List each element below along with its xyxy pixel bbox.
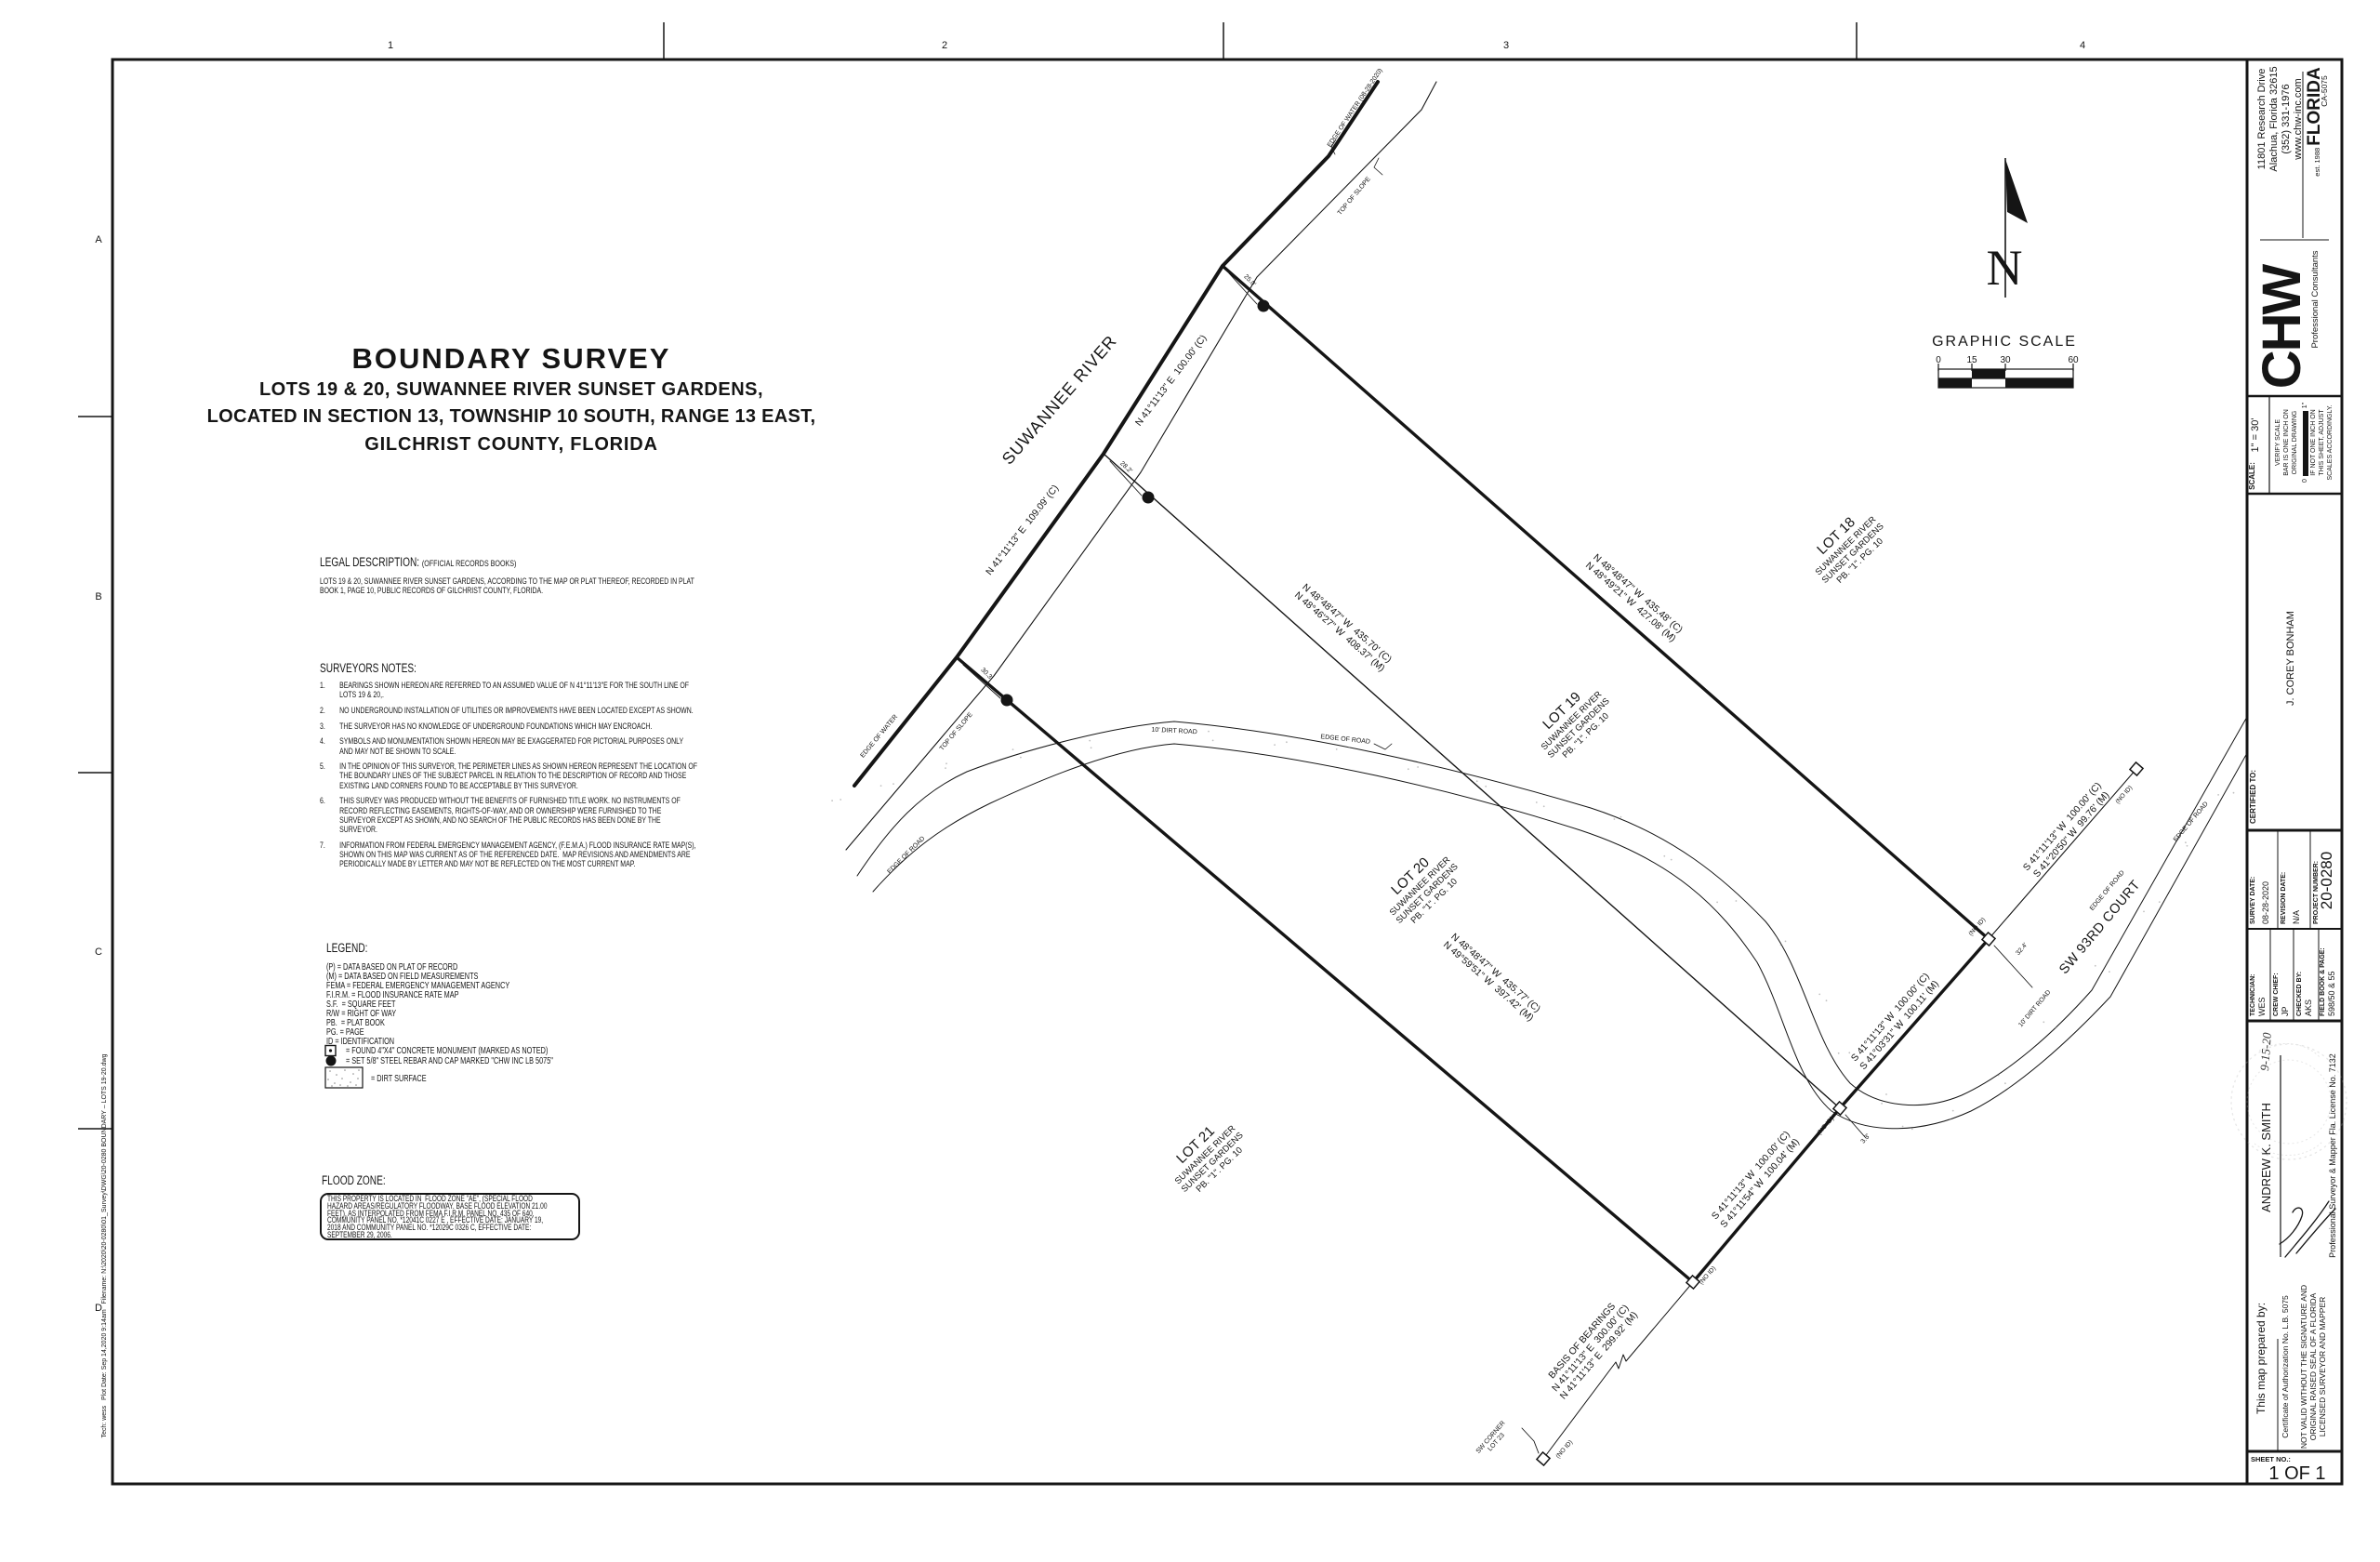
svg-text:CA-5075: CA-5075 <box>2320 75 2329 107</box>
svg-text:CHECKED BY:: CHECKED BY: <box>2296 972 2303 1016</box>
svg-text:THIS SHEET, ADJUST: THIS SHEET, ADJUST <box>2319 409 2325 476</box>
svg-text:J. COREY BONHAM: J. COREY BONHAM <box>2285 611 2296 706</box>
svg-text:S 41°20'50" W 99.76' (M): S 41°20'50" W 99.76' (M) <box>2031 790 2111 880</box>
svg-text:A: A <box>95 234 102 245</box>
svg-text:CERTIFIED TO:: CERTIFIED TO: <box>2249 770 2257 824</box>
svg-text:FIELD BOOK & PAGE:: FIELD BOOK & PAGE: <box>2320 947 2326 1016</box>
svg-text:SURVEY DATE:: SURVEY DATE: <box>2250 877 2256 924</box>
svg-text:08-28-2020: 08-28-2020 <box>2261 881 2270 924</box>
svg-text:(352) 331-1976: (352) 331-1976 <box>2281 84 2292 153</box>
svg-text:N/A: N/A <box>2292 910 2301 924</box>
svg-text:EDGE OF WATER (08-28-2020): EDGE OF WATER (08-28-2020) <box>1327 68 1384 149</box>
svg-text:CREW CHIEF:: CREW CHIEF: <box>2273 973 2280 1016</box>
svg-text:N 49°59'51" W 397.42' (M): N 49°59'51" W 397.42' (M) <box>1441 940 1535 1024</box>
svg-text:REVISION DATE:: REVISION DATE: <box>2281 872 2287 924</box>
svg-text:S 41°11'54" W 100.04' (M): S 41°11'54" W 100.04' (M) <box>1719 1137 1802 1230</box>
svg-text:B: B <box>95 591 101 602</box>
svg-text:3.3': 3.3' <box>1860 1133 1872 1145</box>
svg-text:S 41°03'31" W 100.11' (M): S 41°03'31" W 100.11' (M) <box>1858 979 1941 1072</box>
svg-text:www.chw-inc.com: www.chw-inc.com <box>2293 78 2304 160</box>
svg-text:This map prepared by:: This map prepared by: <box>2254 1303 2268 1414</box>
svg-text:SCALES ACCORDINGLY.: SCALES ACCORDINGLY. <box>2327 404 2334 480</box>
svg-text:11801 Research Drive: 11801 Research Drive <box>2256 69 2268 170</box>
svg-text:JP: JP <box>2281 1006 2290 1016</box>
svg-text:EDGE OF ROAD: EDGE OF ROAD <box>1320 734 1370 746</box>
svg-text:32.4': 32.4' <box>2015 942 2029 957</box>
svg-text:ANDREW K. SMITH: ANDREW K. SMITH <box>2259 1103 2273 1212</box>
svg-text:EDGE OF ROAD: EDGE OF ROAD <box>886 835 926 875</box>
svg-text:2: 2 <box>942 40 947 51</box>
svg-text:N 48°46'27" W 408.37' (M): N 48°46'27" W 408.37' (M) <box>1292 590 1386 674</box>
svg-text:TECHNICIAN:: TECHNICIAN: <box>2250 974 2256 1017</box>
svg-text:Professional Surveyor & Mapper: Professional Surveyor & Mapper Fla. Lice… <box>2328 1053 2337 1258</box>
svg-text:SUWANNEE RIVER: SUWANNEE RIVER <box>998 332 1120 469</box>
svg-text:N: N <box>1987 240 2023 296</box>
svg-text:Professional Consultants: Professional Consultants <box>2310 250 2320 348</box>
svg-text:N 48°48'47" W 435.70' (C): N 48°48'47" W 435.70' (C) <box>1300 582 1393 665</box>
svg-text:1" = 30': 1" = 30' <box>2250 418 2261 453</box>
svg-text:WES: WES <box>2257 997 2267 1016</box>
svg-text:Tech: wess Plot Date: Sep 14: Tech: wess Plot Date: Sep 14,2020 9:14am… <box>101 1053 108 1437</box>
svg-text:TOP OF SLOPE: TOP OF SLOPE <box>939 711 974 752</box>
svg-text:CHW: CHW <box>2252 263 2312 389</box>
svg-text:1 OF 1: 1 OF 1 <box>2268 1463 2325 1484</box>
svg-text:N 41°11'13" E 300.00' (C): N 41°11'13" E 300.00' (C) <box>1551 1304 1632 1395</box>
svg-text:TOP OF SLOPE: TOP OF SLOPE <box>1337 176 1372 217</box>
svg-text:N 48°48'47" W 435.77' (C): N 48°48'47" W 435.77' (C) <box>1448 932 1541 1014</box>
svg-text:VERIFY SCALE: VERIFY SCALE <box>2275 419 2281 466</box>
svg-text:10' DIRT ROAD: 10' DIRT ROAD <box>1151 727 1197 736</box>
svg-text:SHEET NO.:: SHEET NO.: <box>2251 1455 2291 1463</box>
svg-text:ORIGINAL RAISED SEAL OF A FLOR: ORIGINAL RAISED SEAL OF A FLORIDA <box>2308 1292 2318 1440</box>
svg-text:10' DIRT ROAD: 10' DIRT ROAD <box>2017 989 2052 1028</box>
svg-text:NOT VALID WITHOUT THE SIGNATUR: NOT VALID WITHOUT THE SIGNATURE AND <box>2299 1285 2308 1449</box>
svg-text:20-0280: 20-0280 <box>2318 852 2335 909</box>
svg-text:EDGE OF ROAD: EDGE OF ROAD <box>2173 801 2210 843</box>
svg-text:1": 1" <box>2302 402 2308 408</box>
svg-text:BAR IS ONE INCH ON: BAR IS ONE INCH ON <box>2283 409 2290 476</box>
svg-text:ORIGINAL DRAWING: ORIGINAL DRAWING <box>2292 411 2298 475</box>
svg-text:IF NOT ONE INCH ON: IF NOT ONE INCH ON <box>2310 409 2317 475</box>
svg-text:Certificate of Authorization N: Certificate of Authorization No. L.B. 50… <box>2281 1295 2290 1438</box>
svg-text:0: 0 <box>2302 479 2308 483</box>
svg-text:N 48°49'21" W 427.08' (M): N 48°49'21" W 427.08' (M) <box>1583 561 1677 644</box>
svg-text:598/50 & 55: 598/50 & 55 <box>2327 971 2336 1016</box>
svg-text:Alachua, Florida 32615: Alachua, Florida 32615 <box>2268 66 2280 171</box>
svg-text:SW 93RD COURT: SW 93RD COURT <box>2056 878 2143 977</box>
svg-text:(NO ID): (NO ID) <box>1555 1439 1575 1460</box>
svg-text:C: C <box>95 946 102 958</box>
svg-text:(NO ID): (NO ID) <box>1699 1265 1718 1286</box>
svg-text:S 41°11'13" W 100.00' (C): S 41°11'13" W 100.00' (C) <box>2021 781 2103 873</box>
svg-text:3: 3 <box>1503 40 1509 51</box>
svg-text:S 41°11'13" W 100.00' (C): S 41°11'13" W 100.00' (C) <box>1710 1130 1792 1222</box>
svg-text:(NO ID): (NO ID) <box>2115 785 2135 805</box>
svg-text:LICENSED SURVEYOR AND MAPPER: LICENSED SURVEYOR AND MAPPER <box>2318 1297 2327 1437</box>
svg-text:AKS: AKS <box>2304 999 2313 1016</box>
svg-text:GRAPHIC SCALE: GRAPHIC SCALE <box>1932 334 2077 350</box>
svg-text:(NO ID): (NO ID) <box>1817 1116 1836 1136</box>
svg-text:N 48°48'47" W 435.48' (C): N 48°48'47" W 435.48' (C) <box>1591 552 1684 635</box>
svg-text:1: 1 <box>388 40 393 51</box>
svg-text:SCALE:: SCALE: <box>2248 462 2256 490</box>
svg-text:4: 4 <box>2080 40 2085 51</box>
